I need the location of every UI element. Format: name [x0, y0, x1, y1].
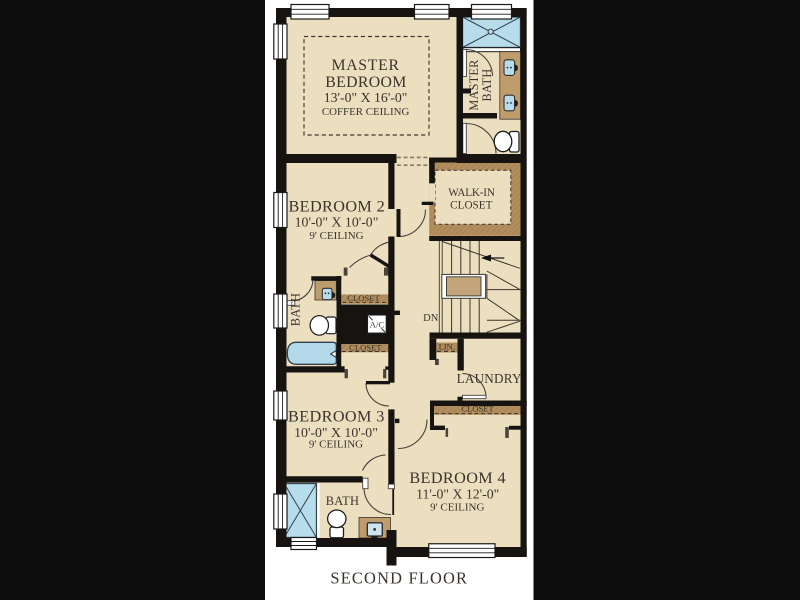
svg-text:CLOSET: CLOSET: [450, 199, 492, 211]
svg-text:BEDROOM 2: BEDROOM 2: [288, 197, 385, 215]
svg-text:11'-0" X 12'-0": 11'-0" X 12'-0": [416, 487, 499, 502]
svg-text:BEDROOM: BEDROOM: [325, 74, 406, 91]
svg-text:BEDROOM 3: BEDROOM 3: [288, 408, 385, 426]
svg-text:A/C: A/C: [370, 319, 385, 329]
svg-text:SECOND FLOOR: SECOND FLOOR: [330, 569, 468, 588]
svg-text:10'-0" X 10'-0": 10'-0" X 10'-0": [295, 215, 379, 230]
svg-text:WALK-IN: WALK-IN: [448, 187, 495, 199]
svg-text:CLOSET: CLOSET: [349, 342, 382, 352]
svg-text:DN: DN: [423, 313, 439, 324]
svg-text:9' CEILING: 9' CEILING: [309, 230, 363, 242]
svg-text:13'-0" X 16'-0": 13'-0" X 16'-0": [324, 90, 408, 105]
svg-text:9' CEILING: 9' CEILING: [430, 502, 484, 514]
svg-text:MASTER: MASTER: [467, 59, 481, 111]
svg-text:9' CEILING: 9' CEILING: [309, 438, 363, 450]
svg-text:CLOSET: CLOSET: [347, 293, 380, 303]
svg-text:BATH: BATH: [326, 494, 360, 508]
svg-text:BEDROOM 4: BEDROOM 4: [409, 469, 506, 487]
svg-text:BATH: BATH: [289, 293, 303, 327]
svg-text:LIN.: LIN.: [439, 342, 455, 352]
svg-text:LAUNDRY: LAUNDRY: [457, 371, 522, 386]
svg-text:MASTER: MASTER: [331, 57, 399, 74]
svg-text:COFFER CEILING: COFFER CEILING: [322, 106, 410, 118]
